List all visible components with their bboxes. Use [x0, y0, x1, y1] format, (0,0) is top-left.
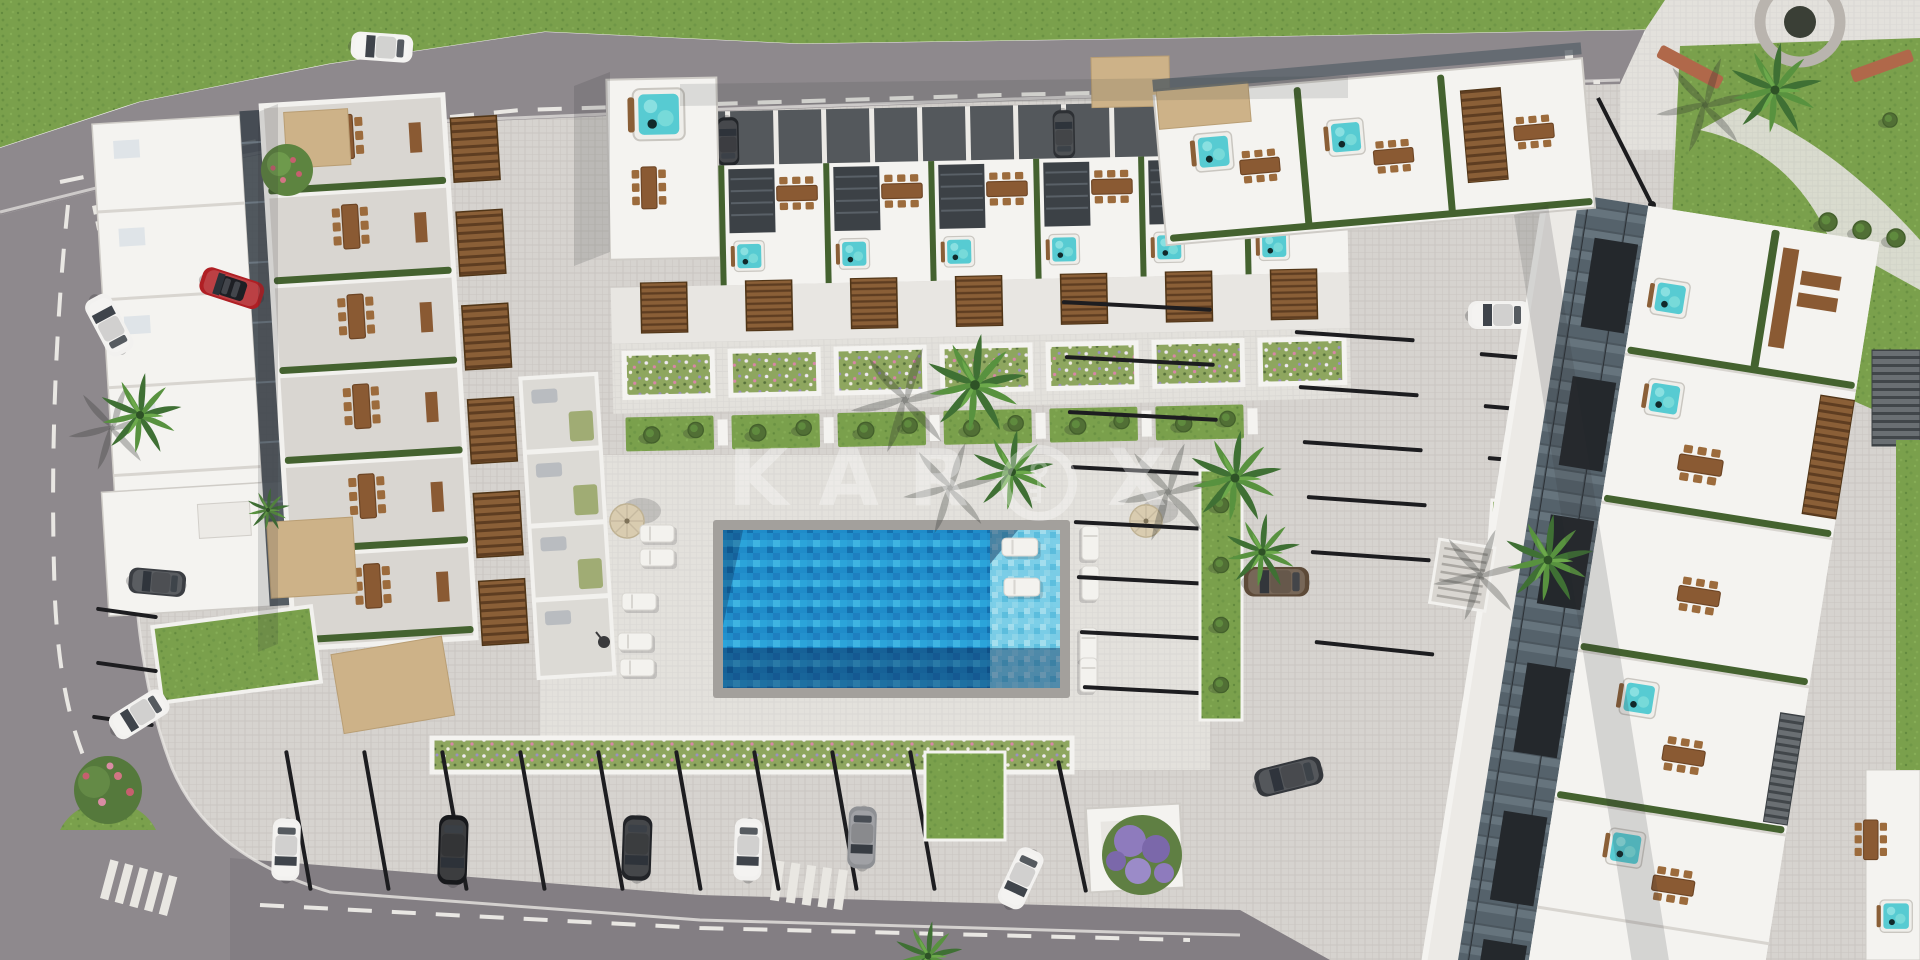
- render-canvas: KAR X: [0, 0, 1920, 960]
- sun-lounger: [622, 593, 659, 613]
- sun-lounger: [620, 659, 657, 679]
- car-white-east: [1465, 301, 1531, 329]
- sun-lounger: [618, 633, 655, 653]
- car-black-suv: [621, 814, 653, 884]
- ground-floor-patios: [520, 374, 614, 678]
- sun-lounger: [640, 549, 677, 569]
- scene-svg: [0, 0, 1920, 960]
- car-white: [733, 817, 763, 884]
- sun-lounger: [1079, 526, 1099, 563]
- car-white-top-road: [347, 31, 415, 64]
- parking-lawn: [925, 752, 1005, 840]
- in-pool-lounger: [1004, 578, 1043, 599]
- car-white: [271, 817, 301, 884]
- in-pool-lounger: [1002, 538, 1041, 559]
- car-black-carport: [716, 115, 739, 167]
- car-black-carport: [1052, 108, 1075, 160]
- pool-wall-shadow: [723, 648, 1060, 688]
- sun-lounger: [1079, 566, 1099, 603]
- stone-tower: [267, 517, 357, 598]
- jacuzzi: [627, 88, 685, 140]
- sun-lounger: [640, 525, 677, 545]
- car-black-van: [437, 814, 469, 889]
- car-grey-west-lane: [125, 567, 188, 598]
- car-grey: [847, 805, 877, 872]
- purple-tree-south: [1102, 815, 1182, 895]
